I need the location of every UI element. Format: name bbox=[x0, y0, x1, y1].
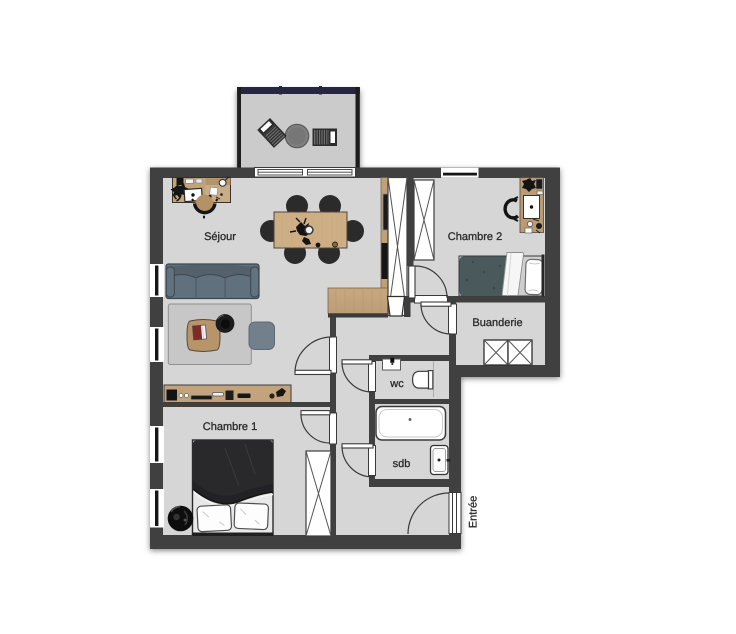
svg-text:Entrée: Entrée bbox=[468, 496, 480, 528]
svg-text:sdb: sdb bbox=[393, 458, 411, 470]
svg-text:Séjour: Séjour bbox=[204, 231, 236, 243]
svg-text:wc: wc bbox=[389, 378, 404, 390]
svg-text:Chambre 2: Chambre 2 bbox=[448, 231, 502, 243]
svg-text:Chambre 1: Chambre 1 bbox=[203, 421, 257, 433]
svg-text:Buanderie: Buanderie bbox=[472, 317, 522, 329]
